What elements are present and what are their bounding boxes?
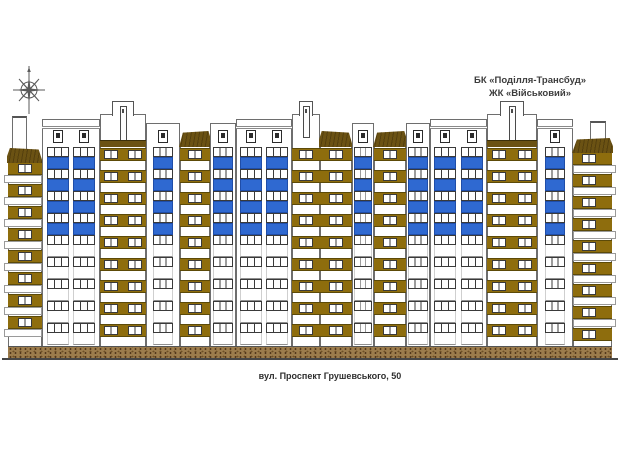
window (383, 194, 397, 203)
loggia-slab (573, 231, 616, 239)
window (408, 235, 428, 245)
window (492, 238, 506, 247)
window (128, 194, 142, 203)
balcony-slab (461, 289, 483, 301)
loggia-slab (4, 241, 42, 249)
balcony-panel (240, 157, 262, 169)
balcony-slab (434, 289, 456, 301)
window (329, 326, 343, 335)
attic-window-pane (82, 133, 86, 138)
roof-band (487, 140, 537, 147)
slot-window-pane (122, 109, 124, 113)
window (582, 242, 596, 251)
window (383, 304, 397, 313)
balcony-panel (545, 179, 565, 191)
window (47, 147, 69, 157)
balcony-panel (153, 179, 173, 191)
window (18, 208, 32, 217)
window (104, 260, 118, 269)
window (213, 213, 233, 223)
loggia-slab (4, 175, 42, 183)
balcony-slab (545, 311, 565, 323)
window (408, 257, 428, 267)
window (240, 213, 262, 223)
window (354, 257, 372, 267)
window (153, 301, 173, 311)
window (153, 169, 173, 179)
balcony-panel (434, 223, 456, 235)
window (299, 304, 313, 313)
window (545, 257, 565, 267)
window (188, 282, 202, 291)
balcony-slab (240, 245, 262, 257)
window (299, 326, 313, 335)
window (73, 279, 95, 289)
window (354, 279, 372, 289)
roof-slope (179, 131, 211, 147)
balcony-slab (266, 289, 288, 301)
loggia-slab (573, 297, 616, 305)
window (188, 326, 202, 335)
window (73, 147, 95, 157)
window (329, 194, 343, 203)
window (18, 296, 32, 305)
window (354, 213, 372, 223)
window (383, 326, 397, 335)
window (408, 301, 428, 311)
balcony-panel (408, 201, 428, 213)
window (153, 323, 173, 333)
balcony-slab (47, 333, 69, 345)
window (213, 191, 233, 201)
window (299, 194, 313, 203)
balcony-panel (408, 223, 428, 235)
window (461, 191, 483, 201)
balcony-slab (545, 333, 565, 345)
window (545, 323, 565, 333)
balcony-panel (73, 179, 95, 191)
window (492, 260, 506, 269)
window (213, 235, 233, 245)
window (492, 282, 506, 291)
balcony-slab (461, 333, 483, 345)
window (461, 279, 483, 289)
balcony-slab (213, 311, 233, 323)
balcony-slab (461, 245, 483, 257)
building-elevation (0, 0, 620, 460)
window (518, 150, 532, 159)
window (104, 282, 118, 291)
balcony-slab (73, 267, 95, 279)
balcony-panel (240, 179, 262, 191)
window (354, 323, 372, 333)
window (18, 186, 32, 195)
window (18, 274, 32, 283)
window (47, 323, 69, 333)
window (518, 304, 532, 313)
window (266, 169, 288, 179)
window (73, 301, 95, 311)
roof-slope (319, 131, 353, 147)
window (354, 301, 372, 311)
balcony-panel (408, 179, 428, 191)
window (408, 279, 428, 289)
balcony-slab (354, 289, 372, 301)
balcony-slab (73, 245, 95, 257)
window (188, 150, 202, 159)
balcony-slab (408, 267, 428, 279)
loggia-slab (573, 319, 616, 327)
window (492, 304, 506, 313)
balcony-panel (73, 157, 95, 169)
balcony-slab (73, 289, 95, 301)
balcony-slab (354, 245, 372, 257)
window (299, 216, 313, 225)
balcony-slab (73, 333, 95, 345)
balcony-slab (545, 245, 565, 257)
window (73, 257, 95, 267)
ground-line (2, 358, 618, 360)
window (128, 282, 142, 291)
window (240, 257, 262, 267)
balcony-slab (545, 289, 565, 301)
balcony-slab (266, 311, 288, 323)
balcony-slab (240, 289, 262, 301)
roof-slope (373, 131, 407, 147)
balcony-panel (47, 157, 69, 169)
balcony-slab (153, 333, 173, 345)
attic-window-pane (56, 133, 60, 138)
window (299, 238, 313, 247)
balcony-panel (354, 201, 372, 213)
balcony-slab (240, 311, 262, 323)
balcony-panel (266, 223, 288, 235)
balcony-panel (266, 201, 288, 213)
window (383, 260, 397, 269)
balcony-panel (434, 157, 456, 169)
window (266, 279, 288, 289)
balcony-slab (266, 267, 288, 279)
balcony-slab (47, 289, 69, 301)
window (434, 147, 456, 157)
balcony-panel (153, 157, 173, 169)
balcony-slab (47, 267, 69, 279)
window (329, 282, 343, 291)
attic-window-pane (221, 133, 225, 138)
window (188, 304, 202, 313)
attic-window-pane (249, 133, 253, 138)
window (461, 301, 483, 311)
window (434, 235, 456, 245)
roof-band (100, 140, 146, 147)
window (128, 304, 142, 313)
attic-window-pane (161, 133, 165, 138)
cornice (430, 126, 487, 129)
window (461, 257, 483, 267)
window (492, 326, 506, 335)
balcony-slab (461, 267, 483, 279)
window (266, 235, 288, 245)
window (153, 279, 173, 289)
window (299, 150, 313, 159)
window (434, 169, 456, 179)
window (492, 150, 506, 159)
elevation-drawing: БК «Поділля-Трансбуд» ЖК «Військовий» ву… (0, 0, 620, 460)
window (73, 191, 95, 201)
balcony-slab (213, 333, 233, 345)
window (492, 194, 506, 203)
window (128, 238, 142, 247)
window (518, 194, 532, 203)
balcony-panel (240, 201, 262, 213)
balcony-panel (408, 157, 428, 169)
window (545, 235, 565, 245)
balcony-slab (153, 245, 173, 257)
window (461, 169, 483, 179)
window (188, 216, 202, 225)
loggia-slab (573, 165, 616, 173)
window (213, 257, 233, 267)
balcony-slab (354, 311, 372, 323)
window (518, 326, 532, 335)
window (299, 282, 313, 291)
window (73, 213, 95, 223)
window (434, 323, 456, 333)
loggia-slab (573, 187, 616, 195)
window (18, 318, 32, 327)
balcony-slab (213, 267, 233, 279)
balcony-panel (73, 223, 95, 235)
window (582, 330, 596, 339)
balcony-panel (434, 179, 456, 191)
window (461, 213, 483, 223)
loggia-slab (4, 329, 42, 337)
window (545, 301, 565, 311)
attic-window-pane (416, 133, 420, 138)
window (128, 150, 142, 159)
window (188, 260, 202, 269)
window (408, 323, 428, 333)
address-label: вул. Проспект Грушевського, 50 (150, 371, 510, 381)
window (518, 282, 532, 291)
window (18, 252, 32, 261)
balcony-slab (434, 333, 456, 345)
loggia-slab (573, 253, 616, 261)
window (104, 326, 118, 335)
balcony-slab (434, 245, 456, 257)
window (188, 238, 202, 247)
window (266, 257, 288, 267)
balcony-panel (47, 179, 69, 191)
window (240, 301, 262, 311)
window (213, 279, 233, 289)
balcony-slab (545, 267, 565, 279)
window (266, 191, 288, 201)
window (434, 301, 456, 311)
window (128, 172, 142, 181)
window (266, 213, 288, 223)
balcony-panel (213, 179, 233, 191)
attic-window-pane (275, 133, 279, 138)
balcony-slab (408, 311, 428, 323)
balcony-panel (266, 179, 288, 191)
balcony-panel (266, 157, 288, 169)
window (299, 172, 313, 181)
window (329, 238, 343, 247)
endcap-roof (572, 138, 613, 153)
balcony-slab (47, 245, 69, 257)
window (213, 169, 233, 179)
window (213, 323, 233, 333)
window (545, 169, 565, 179)
window (153, 235, 173, 245)
window (47, 301, 69, 311)
attic-window-pane (443, 133, 447, 138)
window (354, 147, 372, 157)
window (47, 169, 69, 179)
balcony-slab (153, 267, 173, 279)
window (518, 172, 532, 181)
window (266, 323, 288, 333)
window (104, 172, 118, 181)
window (47, 235, 69, 245)
window (47, 257, 69, 267)
window (434, 191, 456, 201)
balcony-slab (73, 311, 95, 323)
window (104, 150, 118, 159)
window (492, 172, 506, 181)
window (354, 235, 372, 245)
balcony-panel (545, 201, 565, 213)
window (582, 198, 596, 207)
balcony-panel (153, 201, 173, 213)
window (153, 257, 173, 267)
balcony-slab (266, 245, 288, 257)
loggia-slab (573, 209, 616, 217)
window (434, 257, 456, 267)
window (461, 323, 483, 333)
balcony-panel (354, 223, 372, 235)
window (266, 301, 288, 311)
window (545, 279, 565, 289)
attic-window-pane (470, 133, 474, 138)
balcony-slab (240, 267, 262, 279)
window (128, 260, 142, 269)
window (213, 147, 233, 157)
balcony-slab (153, 289, 173, 301)
balcony-panel (213, 201, 233, 213)
cornice (42, 126, 100, 129)
cornice (236, 126, 292, 129)
window (545, 213, 565, 223)
balcony-panel (461, 179, 483, 191)
balcony-slab (266, 333, 288, 345)
cornice (537, 126, 573, 129)
balcony-panel (545, 223, 565, 235)
window (408, 191, 428, 201)
window (240, 235, 262, 245)
window (240, 147, 262, 157)
slot-window-pane (511, 109, 513, 113)
window (329, 172, 343, 181)
balcony-panel (434, 201, 456, 213)
balcony-panel (354, 157, 372, 169)
window (213, 301, 233, 311)
balcony-slab (153, 311, 173, 323)
window (73, 169, 95, 179)
balcony-panel (354, 179, 372, 191)
balcony-slab (408, 289, 428, 301)
balcony-slab (354, 267, 372, 279)
window (104, 304, 118, 313)
window (188, 172, 202, 181)
balcony-slab (461, 311, 483, 323)
window (582, 286, 596, 295)
window (354, 169, 372, 179)
window (461, 147, 483, 157)
slot-window-pane (305, 109, 307, 113)
window (104, 194, 118, 203)
window (545, 147, 565, 157)
window (299, 260, 313, 269)
window (582, 220, 596, 229)
window (492, 216, 506, 225)
window (104, 216, 118, 225)
window (47, 213, 69, 223)
window (240, 169, 262, 179)
window (329, 216, 343, 225)
balcony-slab (408, 245, 428, 257)
balcony-panel (213, 223, 233, 235)
window (408, 213, 428, 223)
window (434, 213, 456, 223)
window (383, 150, 397, 159)
window (240, 191, 262, 201)
balcony-panel (213, 157, 233, 169)
balcony-panel (47, 223, 69, 235)
loggia-slab (573, 275, 616, 283)
window (329, 260, 343, 269)
window (188, 194, 202, 203)
window (153, 147, 173, 157)
balcony-panel (545, 157, 565, 169)
loggia-slab (4, 285, 42, 293)
balcony-slab (408, 333, 428, 345)
window (104, 238, 118, 247)
window (461, 235, 483, 245)
window (153, 213, 173, 223)
window (383, 216, 397, 225)
window (18, 164, 32, 173)
window (266, 147, 288, 157)
balcony-slab (47, 311, 69, 323)
loggia-slab (4, 263, 42, 271)
window (518, 216, 532, 225)
window (240, 279, 262, 289)
window (240, 323, 262, 333)
window (545, 191, 565, 201)
window (128, 216, 142, 225)
window (408, 169, 428, 179)
window (383, 172, 397, 181)
balcony-panel (461, 223, 483, 235)
balcony-slab (213, 245, 233, 257)
window (582, 308, 596, 317)
window (383, 282, 397, 291)
window (329, 304, 343, 313)
window (73, 323, 95, 333)
window (408, 147, 428, 157)
